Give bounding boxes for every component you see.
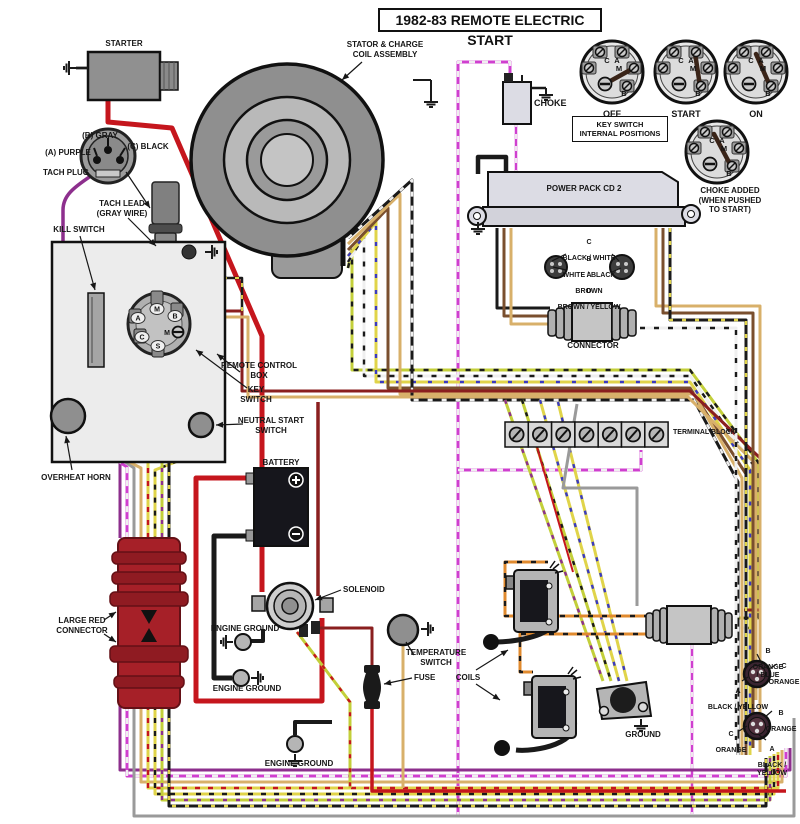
terminal-block	[505, 422, 668, 447]
overheat-horn	[51, 399, 85, 433]
plug2-pin-b-wire: ORANGE	[766, 726, 797, 734]
svg-text:B: B	[695, 89, 701, 98]
dial-on-label: ON	[749, 110, 763, 120]
battery	[246, 468, 308, 546]
overheat-horn-label: OVERHEAT HORN	[41, 473, 111, 483]
power-pack-label: POWER PACK CD 2	[547, 184, 622, 194]
svg-text:S: S	[156, 344, 161, 351]
diagram-title: 1982-83 REMOTE ELECTRIC START	[378, 8, 602, 32]
svg-text:B: B	[621, 89, 627, 98]
pack-pin-c-id: C	[563, 239, 616, 247]
plug2-pin-c: C ORANGE	[716, 723, 747, 763]
wiring-diagram: MBACSM	[0, 0, 800, 824]
plug2-pin-b-id: B	[766, 710, 797, 718]
svg-text:C: C	[709, 136, 715, 145]
plug2-pin-a-id: A	[757, 746, 787, 754]
kill-switch-label: KILL SWITCH	[53, 225, 104, 235]
engine-ground-1-label: ENGINE GROUND	[211, 624, 279, 634]
power-pack	[468, 172, 700, 226]
kill-switch	[88, 293, 104, 367]
pack-pin-d-id: D	[558, 288, 621, 296]
svg-text:M: M	[164, 330, 170, 337]
plug1-pin-c: C ORANGE	[769, 655, 800, 695]
plug1-pin-a-wire: BLACK / YELLOW	[708, 704, 768, 712]
fuse-holder	[363, 665, 381, 709]
solenoid-label: SOLENOID	[343, 585, 385, 595]
engine-ground-2-label: ENGINE GROUND	[213, 684, 281, 694]
diagram-canvas: MBACSM	[0, 0, 800, 824]
svg-text:M: M	[721, 144, 727, 153]
plug2-pin-a: A BLACK / YELLOW	[757, 738, 787, 786]
key-switch-label: KEY SWITCH	[240, 385, 272, 404]
key-switch-dial: CAMB	[725, 41, 787, 103]
remote-box-label: REMOTE CONTROL BOX	[221, 361, 297, 380]
plug2-pin-a-wire: BLACK / YELLOW	[757, 762, 787, 778]
ground-symbol	[251, 671, 263, 685]
stator-label: STATOR & CHARGE COIL ASSEMBLY	[347, 40, 423, 59]
tach-plug-label: TACH PLUG	[43, 168, 89, 178]
pack-pin-d: D BROWN / YELLOW	[558, 280, 621, 320]
svg-text:A: A	[135, 316, 140, 323]
svg-text:B: B	[765, 89, 771, 98]
starter-label: STARTER	[105, 39, 142, 49]
svg-text:C: C	[139, 335, 144, 342]
tach-pin-c-label: (C) BLACK	[127, 142, 168, 152]
connector-label: CONNECTOR	[567, 341, 618, 351]
ground-label: GROUND	[625, 730, 661, 740]
svg-text:C: C	[748, 56, 754, 65]
choke-added-label: CHOKE ADDED (WHEN PUSHED TO START)	[699, 186, 762, 215]
svg-text:M: M	[616, 64, 622, 73]
ground-symbol	[424, 95, 438, 107]
neutral-start-switch	[189, 413, 213, 437]
pack-pin-a-id: A	[575, 272, 602, 280]
ground-bracket	[597, 682, 651, 719]
plug1-pin-a-id: A	[708, 688, 768, 696]
pack-pin-b-id: B	[563, 256, 616, 264]
svg-text:B: B	[172, 314, 177, 321]
coils-label: COILS	[456, 673, 480, 683]
tach-lead-label: TACH LEAD (GRAY WIRE)	[97, 199, 148, 218]
svg-text:C: C	[678, 56, 684, 65]
large-red-connector-label: LARGE RED CONNECTOR	[56, 616, 107, 635]
plug2-pin-c-id: C	[716, 731, 747, 739]
svg-text:M: M	[690, 64, 696, 73]
key-switch-positions-box: KEY SWITCH INTERNAL POSITIONS	[572, 116, 668, 142]
ground-symbol	[64, 61, 76, 75]
plug1-pin-a: A BLACK / YELLOW	[708, 680, 768, 720]
dial-start-label: START	[671, 110, 700, 120]
engine-ground-3-label: ENGINE GROUND	[265, 759, 333, 769]
plug2-pin-c-wire: ORANGE	[716, 747, 747, 755]
svg-text:M: M	[760, 64, 766, 73]
key-switch-dial: CAMB	[655, 41, 717, 103]
terminal-block-label: TERMINAL BLOCK	[673, 429, 736, 437]
svg-text:B: B	[726, 169, 732, 178]
fuse-label: FUSE	[414, 673, 435, 683]
key-switch-dial: CAMB	[686, 121, 748, 183]
neutral-start-label: NEUTRAL START SWITCH	[238, 416, 304, 435]
tach-pin-b-label: (B) GRAY	[82, 131, 118, 141]
battery-label: BATTERY	[263, 458, 300, 468]
svg-text:C: C	[604, 56, 610, 65]
plug1-pin-c-id: C	[769, 663, 800, 671]
ignition-coils	[483, 561, 581, 756]
choke-label: CHOKE	[534, 99, 567, 109]
large-red-connector	[110, 538, 188, 708]
plug2-pin-b: B ORANGE	[766, 702, 797, 742]
svg-text:M: M	[154, 307, 160, 314]
ground-symbol	[421, 622, 433, 636]
key-switch-dial: CAMB	[581, 41, 643, 103]
pack-pin-d-wire: BROWN / YELLOW	[558, 304, 621, 312]
plug1-pin-c-wire: ORANGE	[769, 679, 800, 687]
temperature-switch-label: TEMPERATURE SWITCH	[406, 648, 466, 667]
starter-motor	[76, 52, 178, 100]
temperature-switch	[388, 615, 418, 645]
ground-symbol	[221, 635, 233, 649]
remote-key-switch: MBACSM	[128, 291, 190, 357]
tach-pin-a-label: (A) PURPLE	[45, 148, 91, 158]
harness-connector-lower	[646, 606, 732, 644]
choke-solenoid	[503, 73, 531, 124]
